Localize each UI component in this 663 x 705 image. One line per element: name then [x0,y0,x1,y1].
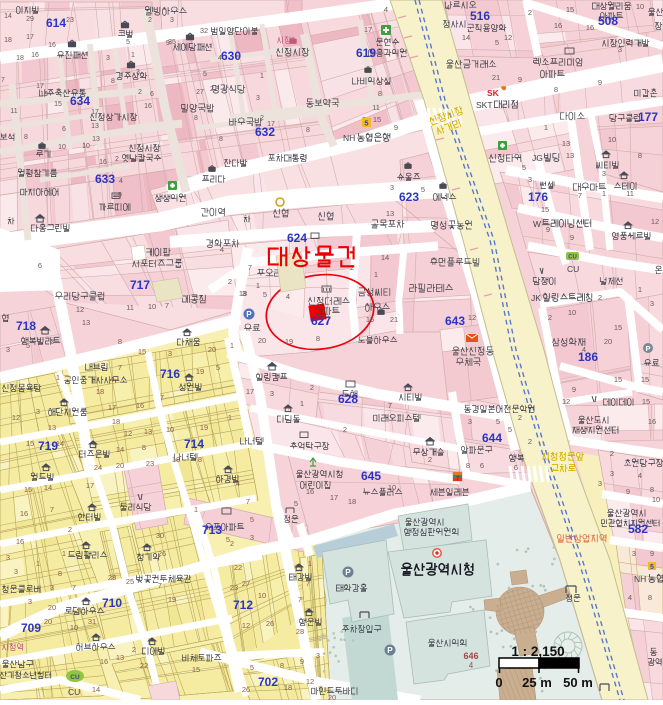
svg-text:3: 3 [250,533,254,542]
svg-text:23: 23 [146,459,154,468]
svg-text:15: 15 [614,323,622,332]
svg-text:3: 3 [270,389,274,398]
svg-text:15: 15 [566,5,574,14]
svg-text:18: 18 [96,387,104,396]
svg-text:16: 16 [306,487,314,496]
svg-text:508: 508 [598,14,618,28]
svg-text:20: 20 [604,337,612,346]
svg-text:645: 645 [361,469,381,483]
svg-text:1: 1 [256,281,260,290]
svg-text:3: 3 [36,407,40,416]
svg-text:2: 2 [518,413,522,422]
svg-text:0: 0 [495,675,502,690]
svg-text:29: 29 [26,16,34,23]
svg-text:8: 8 [198,455,202,464]
svg-text:13: 13 [562,139,570,148]
svg-text:4: 4 [218,55,222,62]
svg-text:1: 1 [62,549,66,558]
svg-text:9: 9 [572,385,576,394]
svg-text:18: 18 [172,455,180,464]
svg-text:8: 8 [219,136,223,143]
svg-text:26: 26 [266,619,274,628]
svg-text:10: 10 [608,135,616,144]
svg-text:2: 2 [228,277,232,286]
svg-text:13: 13 [566,151,574,160]
svg-text:4: 4 [446,3,450,12]
svg-text:5: 5 [650,564,654,571]
svg-text:624: 624 [287,231,307,245]
svg-text:1: 1 [230,341,234,350]
svg-text:19: 19 [196,367,204,376]
svg-text:4: 4 [110,375,114,384]
svg-text:4: 4 [582,345,586,354]
svg-text:16: 16 [648,417,656,426]
svg-text:W: W [533,219,541,229]
svg-text:4: 4 [220,245,224,254]
svg-text:27: 27 [196,89,204,96]
svg-text:7: 7 [165,301,169,310]
svg-text:11: 11 [126,303,134,312]
svg-text:26: 26 [158,549,166,558]
svg-text:1: 1 [602,189,606,198]
svg-text:3: 3 [256,95,260,102]
svg-text:2: 2 [50,337,54,346]
svg-text:5: 5 [364,119,368,128]
svg-text:20: 20 [116,461,124,470]
svg-text:5: 5 [216,363,220,372]
svg-text:12: 12 [12,413,20,422]
svg-text:17: 17 [108,403,116,412]
svg-text:9: 9 [300,657,304,666]
svg-text:17: 17 [91,109,99,116]
svg-text:P: P [345,568,351,577]
svg-text:4: 4 [638,471,642,480]
svg-text:15: 15 [138,347,146,356]
svg-text:17: 17 [86,481,94,490]
svg-text:2: 2 [230,539,234,548]
svg-text:1: 1 [300,399,304,408]
svg-text:26: 26 [242,685,250,694]
svg-text:3: 3 [602,169,606,178]
svg-text:1: 1 [36,559,40,568]
svg-text:16: 16 [586,23,594,32]
svg-text:8: 8 [650,485,654,494]
svg-text:7: 7 [250,121,254,128]
svg-text:14: 14 [92,685,100,694]
svg-text:35: 35 [168,39,176,46]
svg-text:516: 516 [470,9,490,23]
svg-text:14: 14 [4,13,12,20]
svg-text:3: 3 [106,55,110,62]
svg-text:628: 628 [338,392,358,406]
svg-text:30: 30 [156,531,164,540]
svg-text:10: 10 [70,623,78,632]
svg-text:CU: CU [567,264,579,274]
svg-text:644: 644 [482,431,502,445]
svg-text:17: 17 [330,493,338,502]
svg-text:10: 10 [652,495,660,504]
svg-text:31: 31 [88,617,96,626]
svg-text:2: 2 [528,8,532,17]
svg-text:16: 16 [48,42,56,49]
svg-text:4: 4 [236,479,240,488]
svg-text:8: 8 [142,443,146,452]
svg-text:10: 10 [166,425,174,434]
svg-text:10: 10 [388,483,396,492]
svg-text:9: 9 [518,75,522,84]
svg-text:3: 3 [468,417,472,426]
svg-text:623: 623 [399,190,419,204]
svg-text:JK: JK [531,293,541,303]
svg-text:12: 12 [504,33,512,42]
svg-text:4: 4 [469,661,474,670]
svg-text:NH: NH [343,133,355,143]
svg-text:6: 6 [514,463,518,472]
svg-text:NH: NH [634,574,646,584]
svg-text:32: 32 [200,26,208,35]
svg-text:5: 5 [236,55,240,62]
svg-text:11: 11 [626,189,634,198]
svg-text:18: 18 [4,37,12,44]
svg-text:1: 1 [56,373,60,382]
svg-text:16: 16 [20,509,28,518]
svg-text:1: 1 [228,413,232,422]
svg-text:13: 13 [144,427,152,436]
svg-text:17: 17 [267,121,275,128]
svg-text:15: 15 [614,375,622,384]
svg-text:17: 17 [246,387,254,396]
svg-text:18: 18 [284,683,292,692]
svg-text:17: 17 [36,83,44,90]
svg-text:5: 5 [508,425,512,434]
svg-text:21: 21 [492,73,500,82]
svg-text:3: 3 [390,183,394,192]
svg-text:12: 12 [76,305,84,314]
svg-text:3: 3 [14,567,18,576]
svg-text:28: 28 [296,627,304,636]
svg-text:12: 12 [468,313,476,322]
svg-text:702: 702 [258,675,278,689]
svg-text:15: 15 [192,665,200,674]
svg-text:16: 16 [100,657,108,666]
svg-text:1: 1 [308,559,312,568]
svg-text:4: 4 [119,178,123,185]
svg-text:6: 6 [150,91,154,98]
svg-text:CU: CU [70,674,80,681]
svg-text:15: 15 [373,115,381,124]
svg-text:2: 2 [610,449,614,458]
svg-text:7: 7 [246,497,250,506]
svg-text:14: 14 [116,445,124,454]
svg-text:712: 712 [233,598,253,612]
svg-text:4: 4 [384,5,388,14]
svg-text:2: 2 [148,17,152,24]
svg-text:4: 4 [628,593,632,602]
svg-text:643: 643 [445,314,465,328]
svg-text:9: 9 [118,192,122,199]
svg-text:8: 8 [118,337,122,346]
svg-text:6: 6 [480,461,484,470]
svg-text:19: 19 [200,423,208,432]
svg-text:3: 3 [6,553,10,562]
svg-text:13: 13 [82,318,90,327]
svg-text:8: 8 [638,151,642,160]
svg-text:3: 3 [6,345,10,354]
svg-text:2: 2 [528,437,532,446]
svg-text:13: 13 [48,423,56,432]
svg-text:CU: CU [568,255,577,261]
svg-text:1: 1 [260,73,264,80]
svg-text:2: 2 [548,313,552,322]
svg-text:18: 18 [348,497,356,506]
svg-text:P: P [246,310,252,319]
svg-text:10: 10 [636,2,644,11]
svg-text:10: 10 [148,302,156,311]
svg-text:3: 3 [528,175,532,184]
svg-text:5: 5 [263,290,267,299]
svg-text:634: 634 [70,94,90,108]
svg-text:11: 11 [10,108,17,115]
svg-text:5: 5 [522,163,526,172]
svg-text:12: 12 [242,621,250,630]
svg-text:11: 11 [372,103,380,112]
svg-text:6: 6 [38,261,42,270]
svg-text:7: 7 [388,401,392,410]
svg-text:7: 7 [158,581,162,590]
svg-text:23: 23 [230,583,238,592]
svg-text:16: 16 [99,159,107,166]
svg-text:3: 3 [170,17,174,24]
svg-text:15: 15 [642,397,650,406]
svg-text:18: 18 [16,55,24,62]
svg-text:2: 2 [260,115,264,122]
svg-text:SK: SK [487,88,500,98]
svg-text:25 m: 25 m [522,675,552,690]
svg-text:9: 9 [626,487,630,496]
svg-text:5: 5 [126,39,130,46]
svg-text:3: 3 [50,583,54,592]
svg-text:1: 1 [194,505,198,514]
svg-text:627: 627 [311,314,331,328]
svg-text:713: 713 [202,523,222,537]
svg-text:2: 2 [598,293,602,302]
svg-text:3: 3 [168,349,172,358]
svg-text:7: 7 [50,505,54,514]
svg-text:13: 13 [92,136,100,143]
svg-text:19: 19 [168,595,176,604]
svg-text:8: 8 [194,115,198,122]
svg-text:15: 15 [26,439,34,448]
svg-text:25: 25 [126,577,134,586]
svg-text:5: 5 [203,71,207,78]
svg-text:7: 7 [1,77,5,84]
svg-text:20: 20 [48,603,56,612]
svg-text:8: 8 [466,461,470,470]
svg-text:2: 2 [132,645,136,654]
svg-text:15: 15 [24,485,32,494]
svg-text:14: 14 [381,253,389,262]
svg-text:8: 8 [316,334,320,343]
svg-text:20: 20 [208,345,216,354]
svg-text:14: 14 [56,439,64,448]
svg-text:20: 20 [44,617,52,626]
svg-text:2: 2 [350,263,354,272]
svg-text:7: 7 [72,583,76,592]
svg-text:17: 17 [26,34,34,41]
svg-text:13: 13 [91,123,99,130]
svg-text:13: 13 [386,209,394,218]
svg-text:3: 3 [610,469,614,478]
svg-text:21: 21 [390,315,398,324]
svg-text:13: 13 [116,653,124,662]
svg-text:3: 3 [136,69,140,76]
svg-text:1: 1 [374,270,378,279]
svg-text:8: 8 [280,661,284,670]
svg-text:8: 8 [378,89,382,98]
svg-text:716: 716 [160,367,180,381]
svg-text:177: 177 [638,110,658,124]
svg-text:4: 4 [286,292,290,301]
svg-text:2: 2 [343,425,347,434]
svg-text:714: 714 [184,437,204,451]
svg-text:2: 2 [115,156,119,163]
svg-text:10: 10 [82,143,90,150]
svg-text:15: 15 [54,101,62,108]
svg-text:15: 15 [541,205,549,214]
svg-text:710: 710 [102,596,122,610]
svg-text:3: 3 [316,651,320,660]
svg-text:8: 8 [306,127,310,134]
svg-text:5: 5 [250,663,254,672]
svg-text:5: 5 [226,535,230,544]
svg-text:22: 22 [234,563,242,572]
svg-text:5: 5 [495,38,499,47]
svg-text:23: 23 [66,17,74,24]
svg-text:CU: CU [68,687,80,697]
svg-text:8: 8 [648,593,652,602]
svg-text:3: 3 [650,299,654,308]
svg-text:19: 19 [285,337,293,346]
svg-text:16: 16 [554,21,562,30]
svg-text:619: 619 [356,46,376,60]
svg-text:27: 27 [242,579,250,588]
svg-text:3: 3 [598,479,602,488]
svg-text:646: 646 [463,651,478,661]
svg-text:5: 5 [250,515,254,524]
svg-text:9: 9 [394,123,398,132]
svg-text:12: 12 [124,429,132,438]
svg-text:15: 15 [641,375,649,384]
svg-text:JG: JG [532,153,543,163]
svg-text:9: 9 [650,549,654,558]
svg-text:2: 2 [428,455,432,464]
svg-text:15: 15 [366,315,374,324]
svg-text:5: 5 [421,185,425,194]
svg-text:24: 24 [94,463,102,472]
svg-text:2: 2 [68,525,72,534]
svg-text:12: 12 [306,677,314,686]
svg-text:8: 8 [554,85,558,94]
svg-text:9: 9 [570,233,574,242]
svg-text:3: 3 [618,45,622,54]
svg-text:6: 6 [62,126,66,133]
svg-text:19: 19 [40,91,48,98]
svg-text:3: 3 [242,289,246,298]
svg-text:718: 718 [16,319,36,333]
svg-text:633: 633 [95,172,115,186]
svg-text:1: 1 [638,285,642,294]
svg-text:7: 7 [306,579,310,588]
svg-text:P: P [645,344,650,353]
svg-text:5: 5 [496,417,500,426]
svg-text:10: 10 [258,591,266,600]
svg-text:176: 176 [528,190,548,204]
svg-text:9: 9 [598,78,602,87]
svg-text:10: 10 [58,144,66,151]
svg-text:28: 28 [108,573,116,582]
svg-text:14: 14 [462,33,470,42]
svg-text:50 m: 50 m [563,675,593,690]
svg-text:8: 8 [24,134,28,141]
svg-text:717: 717 [130,278,150,292]
svg-text:7: 7 [118,363,122,372]
svg-text:7: 7 [160,393,164,402]
svg-text:3: 3 [28,597,32,606]
svg-text:10: 10 [568,308,576,317]
svg-text:22: 22 [140,661,148,670]
svg-text:12: 12 [562,397,570,406]
svg-text:8: 8 [111,78,115,85]
svg-text:1: 1 [131,52,135,59]
svg-text:5: 5 [294,499,298,508]
svg-text:16: 16 [144,103,152,110]
svg-text:5: 5 [26,341,30,350]
svg-text:8: 8 [58,569,62,578]
svg-text:18: 18 [112,417,120,426]
svg-text:16: 16 [136,401,144,410]
svg-text:3: 3 [632,549,636,558]
svg-text:1 : 2,150: 1 : 2,150 [511,644,564,659]
svg-text:12: 12 [651,217,659,226]
svg-text:2: 2 [210,86,214,93]
svg-text:16: 16 [16,537,24,546]
svg-text:P: P [387,646,393,655]
svg-text:16: 16 [31,52,39,59]
svg-text:614: 614 [46,16,66,30]
svg-text:7: 7 [578,191,582,200]
svg-text:709: 709 [21,621,41,635]
svg-text:7: 7 [248,263,252,272]
svg-text:7: 7 [298,595,302,604]
svg-text:20: 20 [328,693,336,700]
svg-text:1: 1 [544,123,548,132]
svg-text:17: 17 [364,25,372,34]
svg-text:2: 2 [310,383,314,392]
svg-text:20: 20 [258,336,266,345]
svg-text:582: 582 [628,522,648,536]
svg-text:9: 9 [546,225,550,234]
svg-text:2: 2 [138,89,142,96]
svg-text:14: 14 [44,483,52,492]
svg-text:SKT: SKT [476,100,493,110]
